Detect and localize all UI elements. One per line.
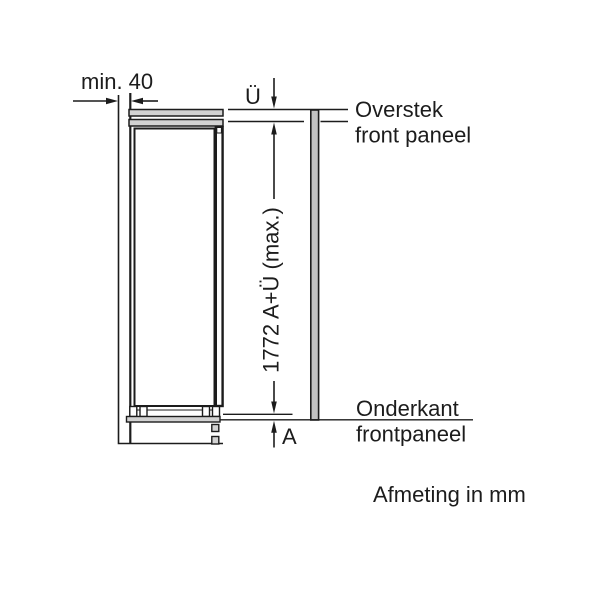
front-panel-bar <box>311 110 319 420</box>
bottom-gap-label: A <box>282 424 297 449</box>
appliance-top-rail-1 <box>129 110 223 117</box>
door-top-detail <box>217 128 222 134</box>
min-clearance-label: min. 40 <box>81 69 153 94</box>
overhang-symbol-label: Ü <box>245 84 261 109</box>
height-arrowhead-up <box>271 123 277 135</box>
gap-arrowhead-up <box>271 421 277 433</box>
height-dimension-label: 1772 A+Ü (max.) <box>259 207 284 373</box>
appliance-door-edge <box>216 127 223 406</box>
overstek-label-line2: front paneel <box>355 123 471 148</box>
foot-right-2 <box>213 407 220 417</box>
installation-diagram: min. 40 Ü 1772 A+Ü (max.) A Overstek fro… <box>0 0 600 600</box>
height-arrowhead-down <box>271 402 277 414</box>
appliance-top-rail-2 <box>129 120 223 127</box>
min40-arrowhead-right <box>131 98 143 104</box>
min40-arrowhead-left <box>106 98 118 104</box>
onderkant-label-line2: frontpaneel <box>356 422 466 447</box>
foot-left-2 <box>140 407 147 417</box>
overstek-label-line1: Overstek <box>355 97 444 122</box>
units-note: Afmeting in mm <box>373 482 526 507</box>
onderkant-label-line1: Onderkant <box>356 396 459 421</box>
base-rail <box>127 417 221 423</box>
foot-left-1 <box>130 407 137 417</box>
diagram-svg: min. 40 Ü 1772 A+Ü (max.) A Overstek fro… <box>0 0 600 600</box>
appliance-body <box>135 129 215 407</box>
foot-right-1 <box>203 407 210 417</box>
overhang-arrowhead-down <box>271 97 277 109</box>
hinge-block-2 <box>212 437 219 445</box>
hinge-block-1 <box>212 425 219 432</box>
